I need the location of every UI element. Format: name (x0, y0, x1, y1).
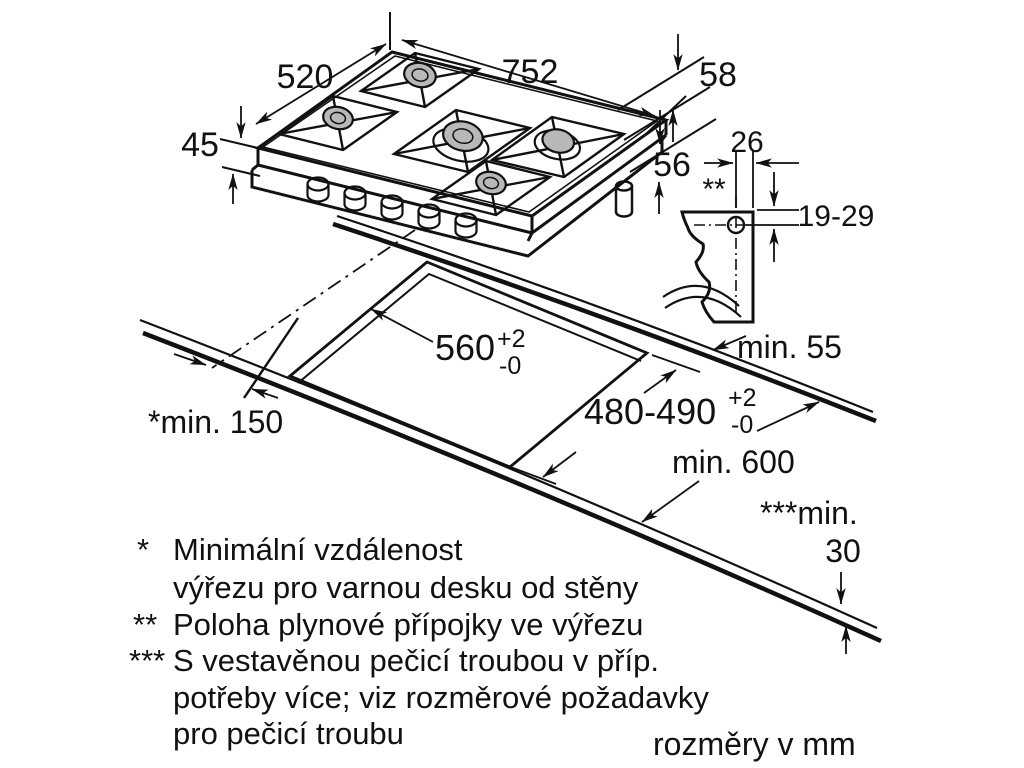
dim-26-label: 26 (730, 126, 763, 159)
footnote-3-line-3: pro pečicí troubu (173, 716, 404, 751)
footnote-1-line-2: výřezu pro varnou desku od stěny (173, 570, 639, 605)
footnotes: * Minimální vzdálenost výřezu pro varnou… (129, 532, 856, 762)
burner-back (402, 60, 439, 91)
svg-text:480-490: 480-490 (584, 391, 716, 432)
units-note: rozměry v mm (653, 726, 856, 762)
gas-position-marker: ** (702, 173, 726, 206)
dim-45-label: 45 (181, 126, 219, 164)
footnote-3-line-2: potřeby více; viz rozměrové požadavky (173, 680, 709, 715)
footnote-2-marker: ** (133, 607, 157, 642)
dim-56-label: 56 (653, 146, 691, 184)
footnote-1-marker: * (137, 532, 149, 567)
dim-19-29-label: 19-29 (798, 200, 875, 233)
clearance-front-label-1: ***min. (760, 495, 858, 531)
svg-text:560: 560 (435, 327, 495, 368)
depth-tolerance-minus: -0 (731, 411, 753, 439)
cutout-width-label: 560 +2 -0 (435, 325, 526, 380)
footnote-2-line-1: Poloha plynové přípojky ve výřezu (173, 607, 643, 642)
hob-installation-diagram: 520 752 45 58 56 26 ** 19-29 (0, 0, 1024, 768)
gas-connection-detail: 26 ** 19-29 (663, 126, 874, 322)
depth-tolerance-plus: +2 (728, 384, 757, 412)
clearance-front-label-2: 30 (825, 533, 861, 569)
burner-front (474, 169, 508, 197)
burner-left (321, 104, 355, 132)
width-tolerance-minus: -0 (499, 352, 521, 380)
left-wall-line (244, 318, 298, 398)
footnote-3-line-1: S vestavěnou pečicí troubou v příp. (173, 643, 659, 678)
dim-58-label: 58 (699, 56, 737, 94)
footnote-1-line-1: Minimální vzdálenost (173, 532, 463, 567)
cutout-depth-label: 480-490 +2 -0 (584, 384, 757, 439)
hob-dimensions: 520 752 45 58 56 (181, 12, 737, 214)
width-tolerance-plus: +2 (497, 325, 526, 353)
burner-center-wok (430, 116, 493, 167)
clearance-left-label: *min. 150 (148, 404, 283, 440)
footnote-3-marker: *** (129, 643, 165, 678)
worktop-depth-label: min. 600 (672, 444, 795, 480)
worktop-back-edge (337, 216, 873, 412)
dim-520-label: 520 (277, 58, 334, 96)
dim-752-label: 752 (502, 53, 559, 91)
installation-diagram-page: 520 752 45 58 56 26 ** 19-29 (0, 0, 1024, 768)
clearance-back-label: min. 55 (737, 329, 842, 365)
